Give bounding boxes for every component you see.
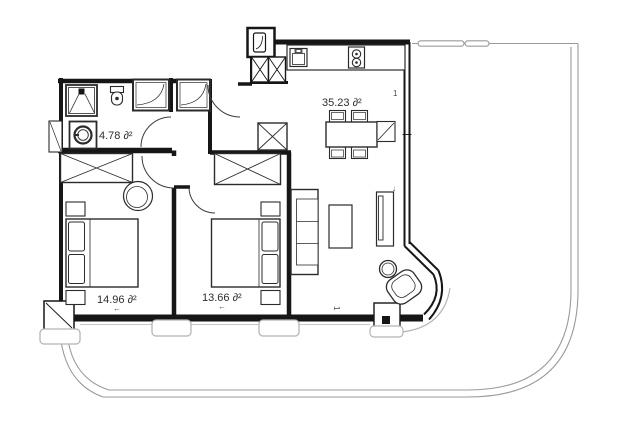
- nightstand: [66, 202, 85, 216]
- entrance: [248, 28, 286, 82]
- vanity-cabinet-left: [133, 80, 169, 111]
- shower-icon: [66, 85, 97, 116]
- nightstand: [261, 291, 280, 305]
- pillar-with-outlet: [374, 303, 400, 328]
- floor-plan-svg: 4.78 ∂² 35.23 ∂² 14.96 ∂² 13.66 ∂² 1 1 ←…: [0, 0, 629, 427]
- arrow-bedroom2: ←: [218, 302, 226, 311]
- sofa: [291, 190, 318, 275]
- vent-shafts: [252, 57, 286, 82]
- toilet-icon: [111, 87, 124, 106]
- living-area-label: 35.23 ∂²: [322, 97, 362, 109]
- kitchen-fixtures: [287, 45, 405, 70]
- bedroom2-furniture: [212, 154, 281, 305]
- dining-chair: [330, 147, 346, 159]
- frame-tab: [152, 320, 191, 336]
- stove-icon: [349, 47, 365, 68]
- floor-plan-canvas: 4.78 ∂² 35.23 ∂² 14.96 ∂² 13.66 ∂² 1 1 ←…: [0, 0, 629, 427]
- sink-icon: [290, 49, 307, 67]
- coffee-table: [329, 205, 352, 248]
- hall-wardrobe: [258, 123, 287, 150]
- arrow-bedroom1: ←: [113, 304, 121, 313]
- dining-set: [326, 111, 395, 159]
- bed: [212, 219, 281, 287]
- window-mark-bottom: 1: [332, 306, 341, 311]
- railing-segment: [465, 41, 489, 46]
- frame-tab: [370, 326, 403, 337]
- nightstand: [261, 202, 280, 216]
- nightstand: [66, 291, 85, 305]
- end-chair: [377, 122, 395, 142]
- outlet-square: [382, 316, 390, 324]
- tv-stand: [377, 192, 394, 246]
- dining-chair: [352, 147, 368, 159]
- pouf-chair: [124, 182, 153, 211]
- frame-tab: [259, 320, 299, 336]
- washing-machine-icon: [49, 121, 97, 152]
- wardrobe-icon: [61, 154, 133, 183]
- dining-table: [326, 122, 377, 147]
- bedroom2-door-arc: [189, 187, 215, 213]
- bed: [66, 219, 138, 287]
- frame-tab: [40, 329, 80, 344]
- bedroom1-door-arc: [142, 156, 174, 188]
- wardrobe-icon: [215, 154, 281, 185]
- dining-chair: [330, 111, 346, 123]
- window-mark-right: 1: [393, 89, 398, 98]
- corner-curve-inner: [424, 275, 437, 315]
- dining-chair: [352, 111, 368, 123]
- bathroom-area-label: 4.78 ∂²: [99, 130, 133, 142]
- bathroom-door-arc: [141, 117, 171, 147]
- railing-segment: [418, 41, 464, 46]
- side-table: [380, 261, 397, 278]
- entry-door-arc: [208, 85, 240, 117]
- arrow-living: ↓: [392, 184, 396, 193]
- bedroom1-furniture: [61, 154, 153, 305]
- entry-door-icon: [254, 33, 266, 52]
- vanity-cabinet-right: [177, 80, 210, 111]
